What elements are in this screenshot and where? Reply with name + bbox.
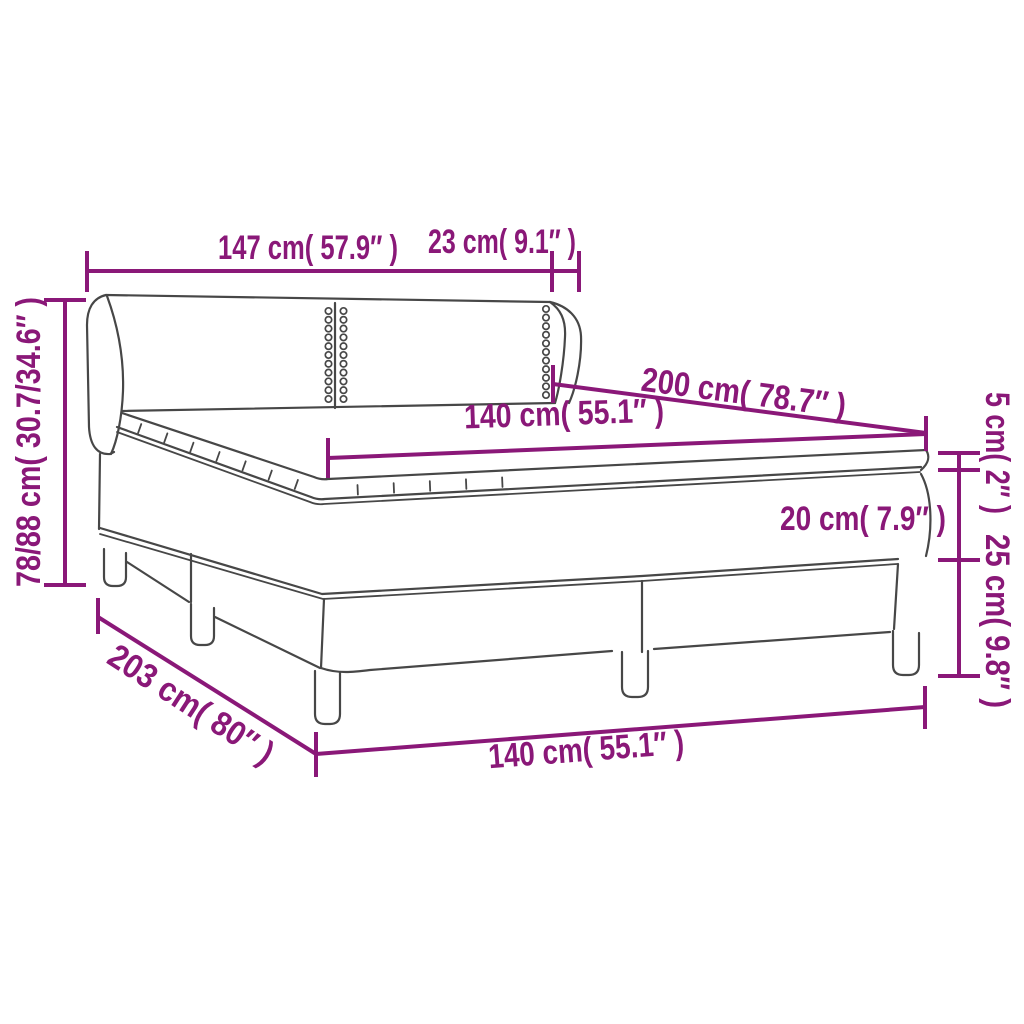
nailhead-dot xyxy=(543,314,549,320)
headboard-left-wing-outer xyxy=(87,295,114,454)
nailhead-dot xyxy=(325,378,331,384)
dim-label-mattress-height: 20 cm( 7.9″ ) xyxy=(780,500,946,538)
base-top-edge xyxy=(100,528,898,594)
stitch-dash xyxy=(243,461,246,470)
dim-label-base-height: 25 cm( 9.8″ ) xyxy=(978,534,1016,708)
box-spring-base xyxy=(100,528,898,672)
nailhead-dot xyxy=(543,306,549,312)
stitch-dash xyxy=(269,471,272,480)
bed-dimension-drawing: 147 cm( 57.9″ ) 23 cm( 9.1″ ) 78/88 cm( … xyxy=(0,0,1024,1024)
base-front-left-corner xyxy=(321,599,324,668)
nailhead-dot xyxy=(543,366,549,372)
headboard-left-wing-inner xyxy=(107,296,123,454)
dimension-labels: 147 cm( 57.9″ ) 23 cm( 9.1″ ) 78/88 cm( … xyxy=(10,223,1016,776)
leg-mid-left xyxy=(191,604,214,645)
dim-label-mattress-width: 140 cm( 55.1″ ) xyxy=(463,392,664,437)
leg-front-right xyxy=(893,631,919,675)
nailhead-dot xyxy=(543,340,549,346)
nailhead-dot xyxy=(325,387,331,393)
dim-label-base-width: 140 cm( 55.1″ ) xyxy=(487,724,685,777)
nailhead-dot xyxy=(325,334,331,340)
stitch-dash xyxy=(190,443,193,452)
dim-label-topper-height: 5 cm( 2″ ) xyxy=(978,392,1016,514)
nailhead-dot xyxy=(325,361,331,367)
nailhead-dot xyxy=(325,308,331,314)
nailhead-dot xyxy=(325,317,331,323)
leg-front-mid xyxy=(622,651,648,697)
dim-label-headboard-height: 78/88 cm( 30.7/34.6″ ) xyxy=(10,297,48,587)
nailhead-dot xyxy=(340,308,346,314)
nailhead-dot xyxy=(543,349,549,355)
nailhead-dot xyxy=(340,387,346,393)
leg-front-left xyxy=(315,671,340,724)
nailhead-dot xyxy=(325,343,331,349)
nailhead-dot xyxy=(340,378,346,384)
stitch-dash xyxy=(216,452,219,461)
dim-label-headboard-side-depth: 23 cm( 9.1″ ) xyxy=(428,223,576,261)
base-right-corner-edge xyxy=(894,564,898,629)
nailhead-dot xyxy=(543,323,549,329)
nailhead-dot xyxy=(325,396,331,402)
nailhead-dot xyxy=(340,325,346,331)
nailhead-dot xyxy=(325,352,331,358)
nailhead-dot xyxy=(340,334,346,340)
nailhead-dot xyxy=(340,369,346,375)
base-foot-bottom-edge xyxy=(321,632,890,672)
nailhead-dot xyxy=(340,396,346,402)
stitch-dash xyxy=(138,424,141,433)
nailhead-dot xyxy=(340,352,346,358)
headboard-top-edge xyxy=(106,295,550,302)
nailhead-dot xyxy=(325,325,331,331)
dim-label-headboard-width: 147 cm( 57.9″ ) xyxy=(218,229,398,267)
nailhead-dot xyxy=(340,343,346,349)
nailhead-dot xyxy=(340,317,346,323)
dimension-diagram: 147 cm( 57.9″ ) 23 cm( 9.1″ ) 78/88 cm( … xyxy=(0,0,1024,1024)
topper-piping-lower xyxy=(117,432,920,504)
nailhead-dot xyxy=(325,369,331,375)
leg-back-left xyxy=(104,549,126,586)
nailhead-dot xyxy=(543,332,549,338)
headboard-left-post xyxy=(99,454,100,529)
stitch-dash xyxy=(295,480,298,489)
dim-label-total-length: 203 cm( 80″ ) xyxy=(101,637,281,772)
dim-label-bed-length: 200 cm( 78.7″ ) xyxy=(639,361,848,426)
nailhead-dot xyxy=(543,375,549,381)
nailhead-dot xyxy=(543,357,549,363)
stitch-dash xyxy=(164,433,167,442)
nailhead-dot xyxy=(543,383,549,389)
nailhead-dot xyxy=(340,361,346,367)
